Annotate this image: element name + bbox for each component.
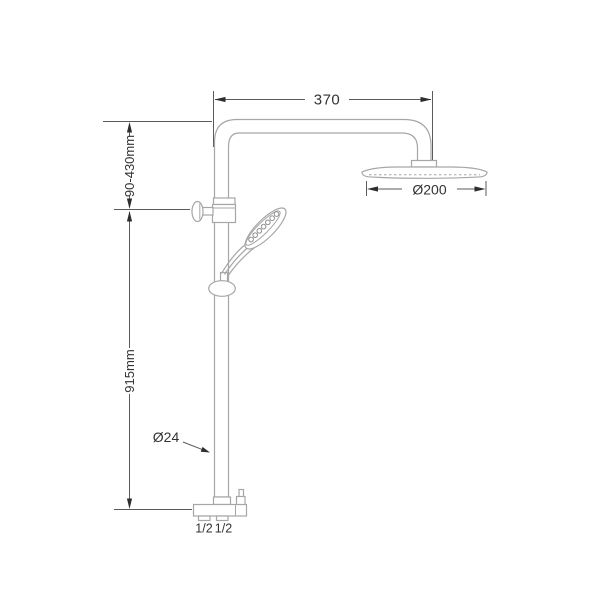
slider-ring [209, 281, 236, 297]
bracket-body [213, 205, 236, 223]
diverter-stub [237, 497, 246, 506]
arrow-down-icon [127, 499, 132, 510]
arrow-up-icon [127, 211, 132, 222]
bracket-collar [214, 198, 236, 205]
riser-height-label: 915mm [122, 349, 137, 392]
slider-bracket [192, 198, 236, 223]
top-offset-label: 90-430mm [122, 135, 137, 197]
hand-shower-head [240, 203, 292, 255]
handle-edge [228, 248, 255, 277]
head-disc [362, 167, 487, 178]
arrow-right-icon [421, 97, 432, 102]
head-diameter-label: Ø200 [412, 182, 446, 198]
bracket-body [194, 505, 247, 517]
arrow-down-icon [127, 199, 132, 210]
cross-knob [192, 202, 203, 222]
rain-shower-head [362, 167, 487, 178]
dimension-top-offset: 90-430mm [103, 122, 212, 210]
left-inlet-tab [199, 516, 211, 521]
arrow-right-icon [475, 186, 486, 191]
diverter-pin [239, 490, 244, 498]
pipe-diameter-label: Ø24 [153, 429, 180, 445]
dimension-head-diameter: Ø200 [367, 181, 487, 198]
diagram-svg: 370 90-430mm 915mm Ø200 Ø24 1/2 [0, 0, 600, 600]
knob-stem [202, 208, 213, 216]
inlet-size-labels: 1/2 1/2 [195, 522, 232, 536]
arm-width-label: 370 [314, 92, 341, 109]
head-flange [412, 161, 437, 168]
dimension-pipe-diameter: Ø24 [153, 429, 210, 453]
arrow-left-icon [215, 97, 226, 102]
right-inlet-tab [217, 516, 229, 521]
left-inlet-label: 1/2 [195, 522, 212, 536]
shower-column-technical-drawing: 370 90-430mm 915mm Ø200 Ø24 1/2 [0, 0, 600, 600]
dimension-riser-height: 915mm [114, 211, 192, 510]
leader-line [183, 442, 203, 450]
right-inlet-label: 1/2 [215, 522, 232, 536]
bracket-collar [214, 497, 231, 505]
arrow-up-icon [127, 122, 132, 133]
arrow-left-icon [367, 186, 378, 191]
arrow-leader-icon [201, 447, 210, 453]
